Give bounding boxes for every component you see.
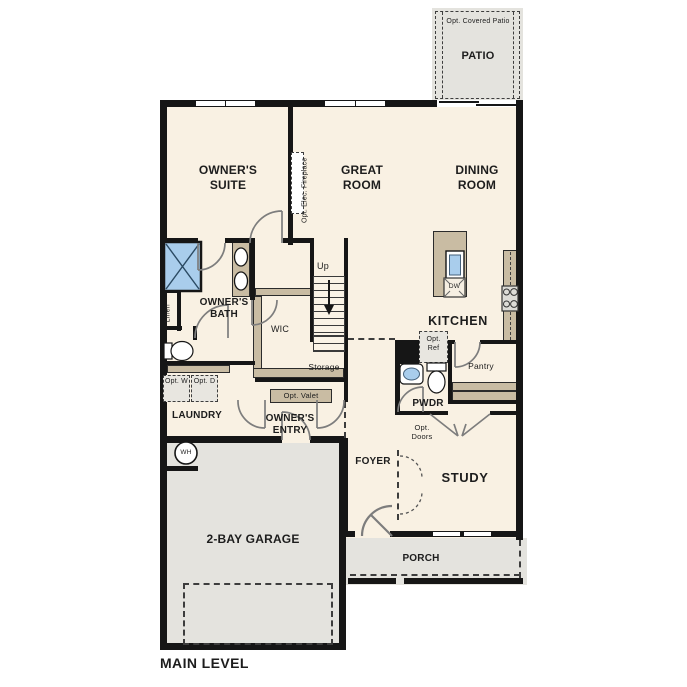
stairs-up-arrow: [324, 280, 334, 315]
toilet-icon: [164, 342, 193, 361]
porch-label: PORCH: [392, 553, 450, 565]
pwdr-label: PWDR: [406, 398, 450, 410]
pwdr-sink-icon: [400, 364, 423, 384]
up-label: Up: [307, 261, 339, 272]
opt-doors-label: Opt. Doors: [403, 423, 441, 441]
opt-doors-arcs: [400, 456, 422, 514]
opt-d-label: Opt. D: [191, 378, 218, 387]
fixtures-layer: [0, 0, 687, 687]
dw-label: DW: [445, 283, 464, 291]
foyer-label: FOYER: [349, 456, 397, 468]
patio-label: PATIO: [437, 50, 519, 63]
linen-label: Linen: [165, 285, 174, 341]
garage-label: 2-BAY GARAGE: [204, 532, 302, 547]
pwdr-toilet-icon: [427, 363, 446, 393]
island-sink-icon: [446, 251, 464, 279]
wh-label: WH: [175, 449, 197, 457]
wic-label: WIC: [261, 324, 299, 335]
shower-icon: [164, 242, 201, 291]
owners-suite-label: OWNER'S SUITE: [193, 163, 263, 192]
stove-icon: [502, 286, 518, 311]
opt-ref-label: Opt. Ref: [421, 336, 446, 353]
floor-plan: Opt. Covered Patio PATIO OWNER'S SUITE G…: [0, 0, 687, 687]
dining-room-label: DINING ROOM: [447, 163, 507, 192]
opt-w-label: Opt. W: [163, 378, 190, 387]
storage-label: Storage: [301, 362, 347, 372]
opt-valet-label: Opt. Valet: [270, 391, 332, 400]
opt-covered-patio-label: Opt. Covered Patio: [437, 18, 519, 27]
main-level-title: MAIN LEVEL: [160, 655, 320, 672]
great-room-label: GREAT ROOM: [332, 163, 392, 192]
fireplace-label: Opt. Elec. Fireplace: [302, 150, 311, 230]
pantry-label: Pantry: [452, 361, 510, 371]
owners-entry-label: OWNER'S ENTRY: [260, 413, 320, 437]
laundry-label: LAUNDRY: [158, 410, 236, 422]
vanity-sinks-icon: [235, 248, 248, 290]
study-label: STUDY: [424, 470, 506, 486]
kitchen-label: KITCHEN: [400, 314, 516, 329]
owners-bath-label: OWNER'S BATH: [194, 297, 254, 321]
